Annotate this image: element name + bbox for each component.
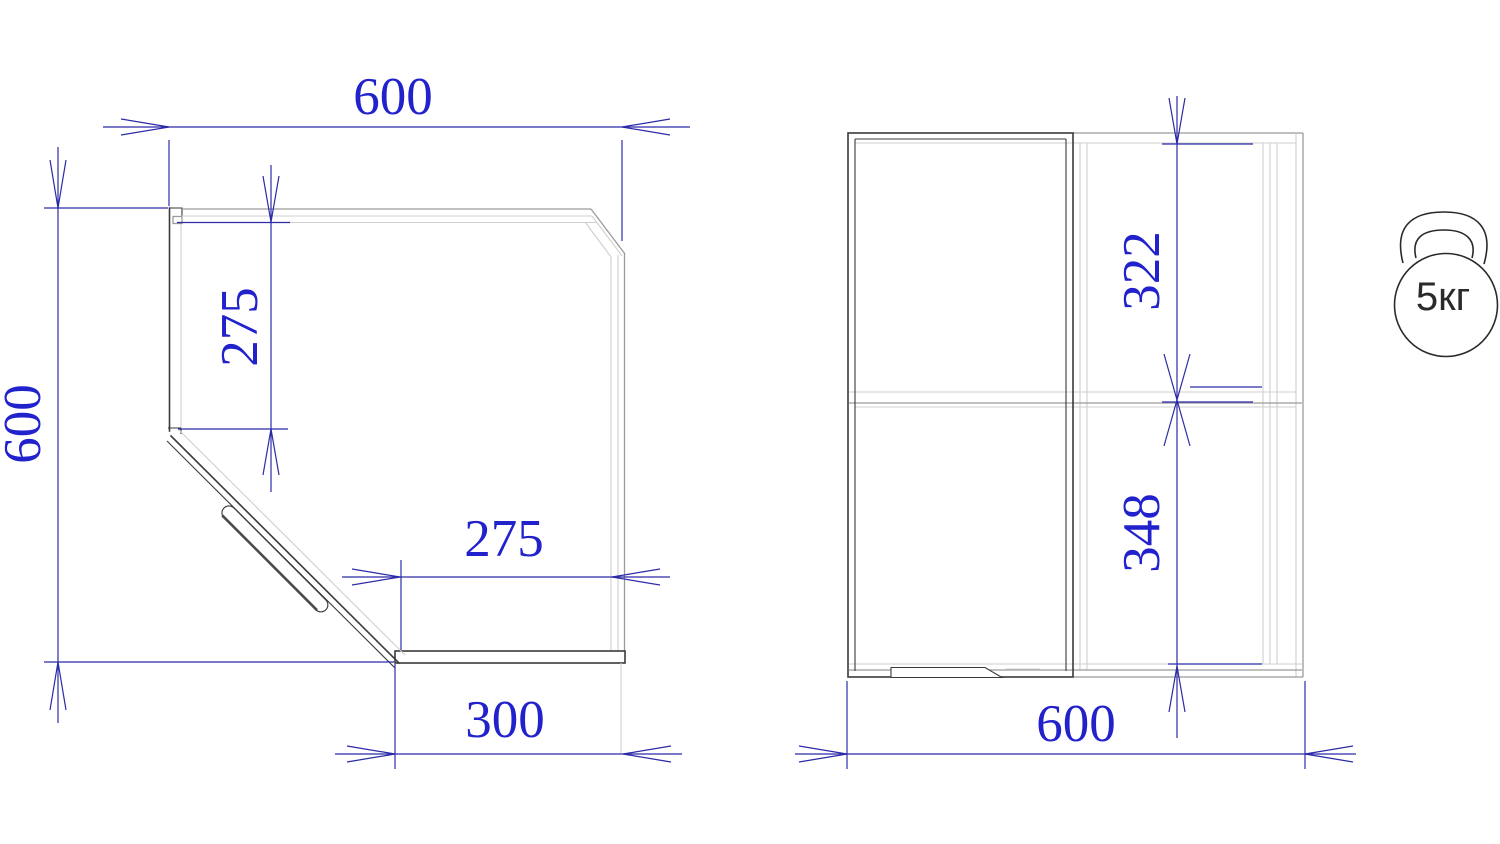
weight-kettlebell-icon: 5кг (1395, 212, 1498, 357)
dim-plan-top-width: 600 (103, 68, 690, 241)
plan-chamfer-mid (592, 216, 622, 256)
dim-plan-left-depth-label: 600 (0, 384, 52, 464)
kettlebell-handle-outer (1401, 212, 1487, 264)
dim-plan-side-panel-depth-label: 275 (211, 287, 269, 367)
dim-plan-bottom-width: 300 (335, 663, 682, 769)
plan-top-left-step (169, 208, 182, 216)
plan-cabinet-outline (168, 208, 625, 663)
dim-front-upper-height-label: 322 (1113, 231, 1171, 311)
dim-front-lower-height-label: 348 (1113, 493, 1171, 573)
dim-plan-left-depth: 600 (0, 147, 394, 723)
dim-front-width-label: 600 (1036, 695, 1116, 753)
dim-plan-side-panel-depth: 275 (177, 165, 290, 492)
plan-door (167, 429, 405, 668)
dim-plan-top-width-label: 600 (353, 68, 433, 126)
front-view: 322 348 600 (795, 96, 1356, 769)
corner-cabinet-technical-drawing: 600 600 275 275 (0, 0, 1500, 844)
dim-plan-bottom-width-label: 300 (465, 691, 545, 749)
dim-plan-opening-width: 275 (342, 510, 670, 650)
plan-chamfer-inner (585, 222, 611, 257)
dim-plan-opening-width-label: 275 (464, 510, 544, 568)
plan-door-handle-shadow (222, 515, 317, 610)
plan-door-handle (219, 503, 331, 615)
plan-chamfer-outer (591, 209, 625, 254)
plan-bottom-panel (395, 651, 625, 663)
plan-view: 600 600 275 275 (0, 68, 690, 769)
weight-label: 5кг (1416, 275, 1470, 319)
front-door-handle (891, 668, 1002, 678)
cad-drawing-canvas: 600 600 275 275 (0, 0, 1500, 844)
dim-front-width: 600 (795, 681, 1356, 769)
front-door (848, 133, 1073, 678)
plan-door-outer-face (178, 429, 405, 655)
dim-front-sections: 322 348 (1113, 96, 1262, 738)
front-case (849, 133, 1303, 677)
front-door-outline (848, 133, 1073, 677)
plan-door-handle-capsule (219, 503, 331, 615)
plan-door-body-line (171, 436, 399, 663)
